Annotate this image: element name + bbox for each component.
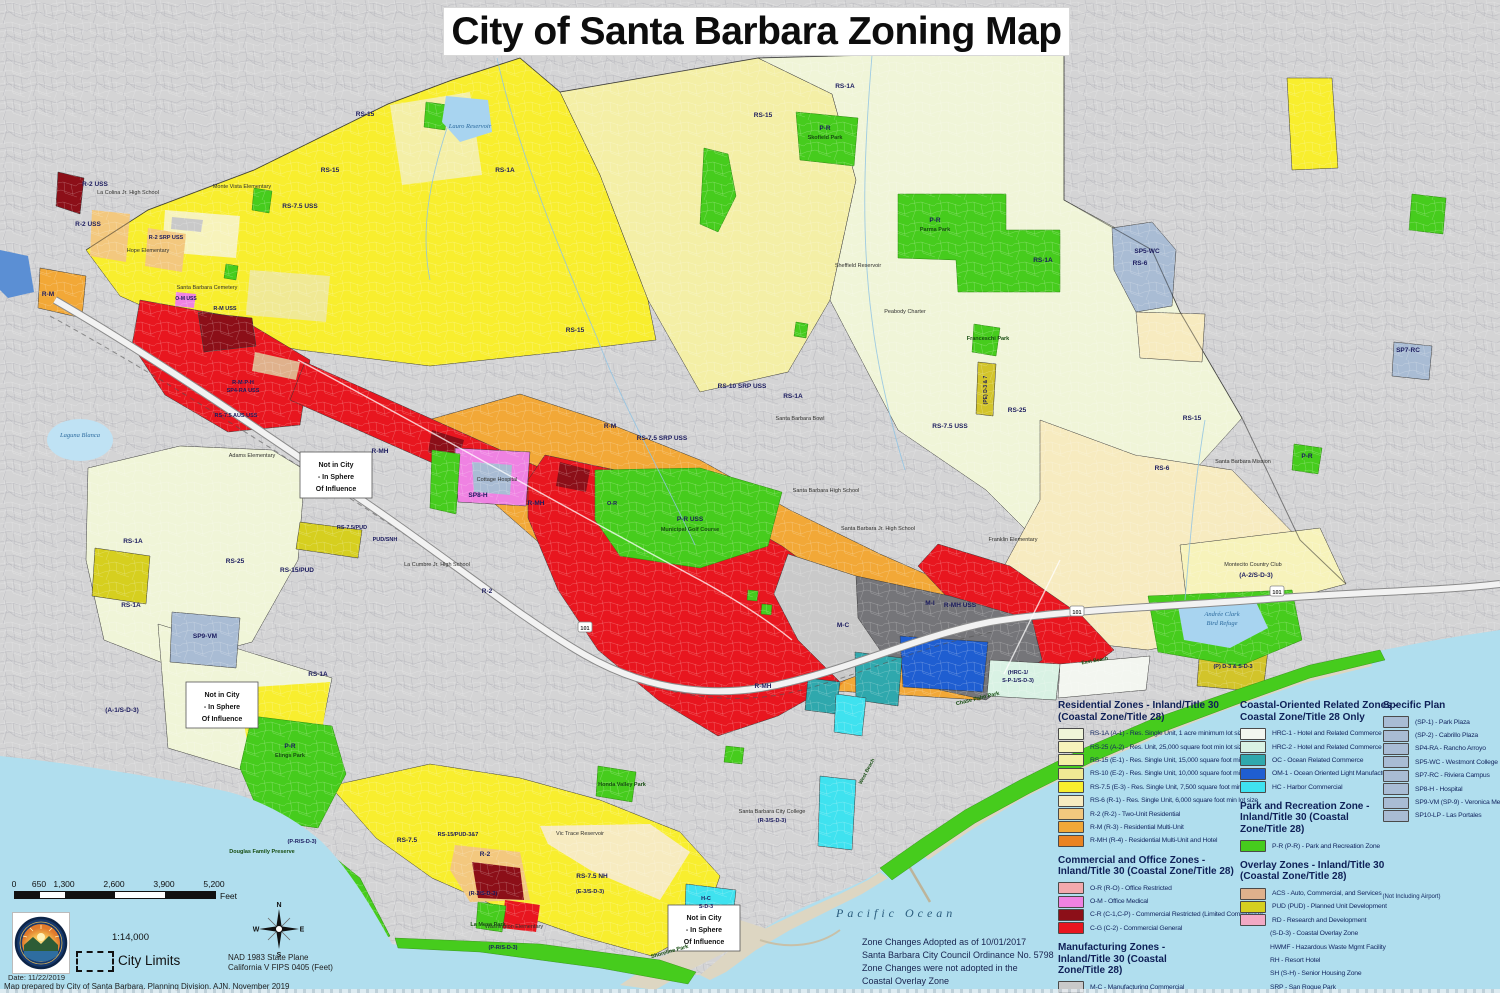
legend-item-label: RD - Research and Development [1272,917,1366,924]
scale-segment [115,892,165,898]
svg-text:- In Sphere: - In Sphere [204,704,240,711]
map-label: R-2 USS [82,181,108,188]
legend-item-label: ACS - Auto, Commercial, and Services [1272,890,1382,897]
map-label: (R-3/S-D-3) [758,818,787,824]
map-label: RS-6 [1133,260,1148,267]
map-label: SP9-VM [193,633,217,640]
legend-item: SP9-VM (SP-9) - Veronica Meadows [1383,796,1500,809]
map-date: Date: 11/22/2019 [8,973,65,982]
legend-swatch [1240,840,1266,852]
legend-item-label: (S-D-3) - Coastal Overlay Zone [1270,930,1358,937]
ocean-label: Pacific Ocean [836,906,956,921]
map-label: (R-2/S-D-3) [469,891,498,897]
map-label: (A-2/S-D-3) [1239,572,1273,579]
legend-item-label: O-M - Office Medical [1090,898,1148,905]
city-limits-label: City Limits [118,953,180,968]
svg-text:Of Influence: Of Influence [202,716,243,723]
legend-section: Manufacturing Zones - Inland/Title 30 (C… [1058,942,1265,993]
scale-segment [40,892,65,898]
compass-n: N [276,902,281,909]
map-label: M-I [925,600,935,607]
legend-swatch [1058,768,1084,780]
map-label: Elings Park [275,753,306,759]
legend-swatch [1058,909,1084,921]
map-label: Parma Park [920,227,951,233]
legend-swatch [1383,716,1409,728]
legend-item: RS-10 (E-2) - Res. Single Unit, 10,000 s… [1058,767,1265,780]
legend-section-title: Residential Zones - Inland/Title 30 (Coa… [1058,700,1236,723]
scale-tick: 0 [12,879,17,889]
legend-swatch [1383,743,1409,755]
map-label: RS-15 [566,327,585,334]
legend-item: SP5-WC - Westmont College [1383,756,1500,769]
legend-item-label: RS-25 (A-2) - Res. Unit, 25,000 square f… [1090,744,1245,751]
map-label: RS-15/PUD [280,567,314,574]
map-label: SP4-RA USS [227,388,260,394]
map-label: RS-7.5 SRP USS [637,435,688,442]
city-limits-swatch [76,951,114,972]
map-label: Skofield Park [808,135,844,141]
map-label: Franceschi Park [967,336,1010,342]
map-label: RS-7.5 AUS USS [215,413,258,419]
legend-item-label: R-MH (R-4) - Residential Multi-Unit and … [1090,837,1217,844]
legend-item: RS-25 (A-2) - Res. Unit, 25,000 square f… [1058,740,1265,753]
legend-swatch [1240,741,1266,753]
map-label: Franklin Elementary [989,537,1038,543]
map-label: Bird Refuge [1207,620,1238,627]
legend-swatch [1383,770,1409,782]
legend-item-label: RH - Resort Hotel [1270,957,1320,964]
map-label: (P) D-3 & S-D-3 [1213,664,1252,670]
legend-swatch [1058,896,1084,908]
map-label: R-M [42,291,54,298]
map-label: R-M USS [213,306,237,312]
highway-101-shield: 101 [1270,586,1284,596]
legend-swatch [1383,756,1409,768]
legend-section-title: Overlay Zones - Inland/Title 30 (Coastal… [1240,860,1392,883]
svg-text:101: 101 [1072,610,1081,616]
map-label: Cottage Hospital [477,477,518,483]
map-label: Andrée Clark [1203,611,1239,618]
city-seal [12,912,70,974]
map-label: H-C [701,896,711,902]
map-label: R-MH [372,448,389,455]
map-label: RS-7.5 USS [282,203,318,210]
legend-item-label: SP7-RC - Riviera Campus [1415,772,1490,779]
legend-item-label: RS-6 (R-1) - Res. Single Unit, 6,000 squ… [1090,797,1258,804]
legend-section-title: Commercial and Office Zones - Inland/Tit… [1058,855,1236,878]
legend-item-label: RS-1A (A-1) - Res. Single Unit, 1 acre m… [1090,730,1246,737]
legend-item: RH - Resort Hotel [1240,954,1441,967]
legend-section-title: Coastal-Oriented Related Zones - Coastal… [1240,700,1398,723]
legend-item-label: RS-7.5 (E-3) - Res. Single Unit, 7,500 s… [1090,784,1263,791]
map-label: PUD/SNH [373,537,398,543]
compass-e: E [300,927,305,934]
map-label: Hope Elementary [127,248,170,254]
legend-item-label: SP10-LP - Las Portales [1415,812,1482,819]
page-title: City of Santa Barbara Zoning Map [443,7,1070,56]
map-label: RS-1A [1033,257,1053,264]
legend-item-note: (Not Including Airport) [1383,894,1441,900]
legend-item-label: (SP-2) - Cabrillo Plaza [1415,732,1478,739]
map-label: RS-1A [835,83,855,90]
svg-text:Of Influence: Of Influence [316,486,357,493]
legend-item-label: (SP-1) - Park Plaza [1415,719,1470,726]
map-label: Santa Barbara City College [739,809,806,815]
map-label: RS-1A [495,167,515,174]
map-label: RS-7.5 USS [932,423,968,430]
legend-swatch [1058,781,1084,793]
map-label: RS-7.5 [397,837,418,844]
legend-swatch [1058,741,1084,753]
legend-swatch [1240,781,1266,793]
scale-ratio: 1:14,000 [112,932,149,943]
legend-item-label: PUD (PUD) - Planned Unit Development [1272,903,1387,910]
map-label: Santa Barbara Cemetery [177,285,238,291]
svg-text:- In Sphere: - In Sphere [318,474,354,481]
legend-section-title: Park and Recreation Zone - Inland/Title … [1240,801,1375,836]
map-label: Monte Vista Elementary [213,184,272,190]
legend-section: Commercial and Office Zones - Inland/Tit… [1058,855,1265,936]
legend-item-label: R-M (R-3) - Residential Multi-Unit [1090,824,1184,831]
legend-item-label: HC - Harbor Commercial [1272,784,1342,791]
legend-column-3: Specific Plan(SP-1) - Park Plaza(SP-2) -… [1383,700,1500,823]
legend-item: O-R (R-O) - Office Restricted [1058,882,1265,895]
map-label: Honda Valley Park [598,782,647,788]
legend-item: R-MH (R-4) - Residential Multi-Unit and … [1058,834,1265,847]
map-label: La Cumbre Jr. High School [404,562,470,568]
legend-item: SH (S-H) - Senior Housing Zone [1240,967,1441,980]
map-label: (P-R/S-D-3) [287,839,316,845]
map-label: Montecito Country Club [1224,562,1281,568]
scale-segment [165,892,215,898]
map-label: R-MH [755,683,772,690]
map-label: P-R [1301,453,1313,460]
svg-text:101: 101 [580,626,589,632]
not-in-city-box: Not in City- In SphereOf Influence [186,682,258,728]
legend-item-label: C-G (C-2) - Commercial General [1090,925,1182,932]
map-label: Adams Elementary [229,453,276,459]
legend-item-label: OC - Ocean Related Commerce [1272,757,1363,764]
legend-item-label: HRC-2 - Hotel and Related Commerce II [1272,744,1387,751]
legend-swatch [1240,754,1266,766]
legend-swatch [1240,914,1266,926]
legend-item: RS-6 (R-1) - Res. Single Unit, 6,000 squ… [1058,794,1265,807]
legend-swatch [1058,882,1084,894]
map-label: La Colina Jr. High School [97,190,159,196]
laguna-blanca-lake [47,419,113,461]
legend-item: RD - Research and Development [1240,914,1441,927]
map-label: RS-15 [754,112,773,119]
legend-swatch [1383,783,1409,795]
legend-item: (S-D-3) - Coastal Overlay Zone [1240,927,1441,940]
legend-item: C-G (C-2) - Commercial General [1058,922,1265,935]
svg-text:Not in City: Not in City [205,692,240,699]
legend-item: (SP-1) - Park Plaza [1383,716,1500,729]
map-label: RS-15/PUD-3&7 [438,832,479,838]
legend-item: RS-15 (E-1) - Res. Single Unit, 15,000 s… [1058,754,1265,767]
legend-item: P-R (P-R) - Park and Recreation Zone [1240,839,1441,852]
legend-item: R-2 (R-2) - Two-Unit Residential [1058,807,1265,820]
map-label: RS-6 [1155,465,1170,472]
scale-tick: 650 [32,879,46,889]
scale-tick: 2,600 [103,879,124,889]
not-in-city-box: Not in City- In SphereOf Influence [668,905,740,951]
map-label: R-2 [480,851,491,858]
map-label: M-C [837,622,850,629]
bottom-cut-strip [0,989,1500,993]
svg-text:- In Sphere: - In Sphere [686,927,722,934]
map-label: P-R [284,743,296,750]
map-label: Santa Barbara Jr. High School [841,526,915,532]
map-label: Lauro Reservoir [448,123,492,130]
map-label: Santa Barbara Bowl [776,416,825,422]
map-label: Douglas Family Preserve [229,849,294,855]
legend-swatch [1058,808,1084,820]
legend-item: R-M (R-3) - Residential Multi-Unit [1058,821,1265,834]
legend-item-label: HRC-1 - Hotel and Related Commerce I [1272,730,1385,737]
map-label: P-R USS [677,516,704,523]
map-label: RS-7.5/PUD [337,525,367,531]
map-label: RS-1A [308,671,328,678]
map-label: RS-15 [321,167,340,174]
legend-item-label: SP4-RA - Rancho Arroyo [1415,745,1486,752]
svg-text:101: 101 [1272,590,1281,596]
legend-section: Specific Plan(SP-1) - Park Plaza(SP-2) -… [1383,700,1500,823]
legend-item: SP7-RC - Riviera Campus [1383,769,1500,782]
legend-swatch [1058,728,1084,740]
map-label: P-R [819,125,831,132]
map-label: S-D-3 [699,904,713,910]
map-label: RS-7.5 NH [576,873,608,880]
map-label: RS-1A [121,602,141,609]
legend-item: ACS - Auto, Commercial, and Services(Not… [1240,887,1441,900]
map-label: La Mesa Park [470,922,506,928]
map-label: Sheffield Reservoir [835,263,882,269]
compass-w: W [253,927,260,934]
map-label: Santa Barbara High School [793,488,860,494]
zoning-map-screenshot: 101101101 Not in City- In SphereOf Influ… [0,0,1500,993]
legend-swatch [1240,901,1266,913]
legend-swatch [1058,795,1084,807]
map-label: (A-1/S-D-3) [105,707,139,714]
highway-101-shield: 101 [1070,606,1084,616]
scale-bar: 06501,3002,6003,9005,200 Feet [14,879,244,903]
map-label: Peabody Charter [884,309,926,315]
legend-item: SP8-H - Hospital [1383,782,1500,795]
svg-text:Not in City: Not in City [319,462,354,469]
map-label: R-2 SRP USS [149,235,184,241]
legend-item: O-M - Office Medical [1058,895,1265,908]
scale-segment [15,892,40,898]
legend-swatch [1058,821,1084,833]
scale-tick: 5,200 [203,879,224,889]
legend-item: C-R (C-1,C-P) - Commercial Restricted (L… [1058,908,1265,921]
legend-item-label: SP5-WC - Westmont College [1415,759,1498,766]
legend-item: RS-1A (A-1) - Res. Single Unit, 1 acre m… [1058,727,1265,740]
map-label: O-M USS [175,296,197,302]
map-label: Vic Trace Reservoir [556,831,604,837]
map-label: RS-1A [123,538,143,545]
legend-swatch [1240,888,1266,900]
legend-item-label: SP9-VM (SP-9) - Veronica Meadows [1415,799,1500,806]
legend-swatch [1058,835,1084,847]
scale-unit: Feet [220,891,237,901]
svg-text:Of Influence: Of Influence [684,939,725,946]
legend-item-label: RS-10 (E-2) - Res. Single Unit, 10,000 s… [1090,770,1265,777]
legend-swatch [1058,754,1084,766]
map-label: S-P-1/S-D-3) [1002,678,1034,684]
legend-swatch [1058,922,1084,934]
legend-item: (SP-2) - Cabrillo Plaza [1383,729,1500,742]
map-label: SP5-WC [1134,248,1160,255]
scale-segment [65,892,115,898]
not-in-city-box: Not in City- In SphereOf Influence [300,452,372,498]
legend-item-label: HWMF - Hazardous Waste Mgmt Facility [1270,944,1386,951]
map-label: RS-10 SRP USS [718,383,767,390]
legend-item-label: R-2 (R-2) - Two-Unit Residential [1090,811,1180,818]
legend-section-title: Specific Plan [1383,700,1500,712]
legend-column-1: Residential Zones - Inland/Title 30 (Coa… [1058,700,1265,993]
legend-swatch [1240,768,1266,780]
map-label: RS-15 [356,111,375,118]
datum-note: NAD 1983 State Plane California V FIPS 0… [228,953,333,973]
highway-101-shield: 101 [578,622,592,632]
map-label: R-2 USS [75,221,101,228]
map-label: (HRC-1/ [1008,670,1029,676]
map-label: RS-15 [1183,415,1202,422]
legend-item-label: OM-1 - Ocean Oriented Light Manufacturin… [1272,770,1396,777]
scale-tick: 3,900 [153,879,174,889]
map-label: R-M-P-H [232,380,254,386]
map-label: Santa Barbara Mission [1215,459,1271,465]
legend-swatch [1383,797,1409,809]
map-label: Municipal Golf Course [661,527,719,533]
map-label: RS-1A [783,393,803,400]
map-label: (PE) D-3 & 7 [983,375,989,404]
map-label: O-R [607,501,617,507]
legend-item: HWMF - Hazardous Waste Mgmt Facility [1240,940,1441,953]
legend-item-label: O-R (R-O) - Office Restricted [1090,885,1172,892]
legend-item-label: RS-15 (E-1) - Res. Single Unit, 15,000 s… [1090,757,1265,764]
map-label: RS-25 [1008,407,1027,414]
map-label: RS-25 [226,558,245,565]
map-label: R-2 [482,588,493,595]
legend-item-label: SH (S-H) - Senior Housing Zone [1270,970,1361,977]
map-label: P-R [929,217,941,224]
legend-item: SP4-RA - Rancho Arroyo [1383,742,1500,755]
legend-item-label: SP8-H - Hospital [1415,786,1462,793]
map-label: R-MH [528,500,545,507]
legend-item-label: C-R (C-1,C-P) - Commercial Restricted (L… [1090,911,1263,918]
legend-item: SP10-LP - Las Portales [1383,809,1500,822]
map-label: SP8-H [468,492,487,499]
legend-section: Residential Zones - Inland/Title 30 (Coa… [1058,700,1265,848]
legend-item: PUD (PUD) - Planned Unit Development [1240,900,1441,913]
legend-section: Overlay Zones - Inland/Title 30 (Coastal… [1240,860,1441,993]
legend-item: RS-7.5 (E-3) - Res. Single Unit, 7,500 s… [1058,781,1265,794]
map-label: SP7-RC [1396,347,1420,354]
map-label: (P-R/S-D-3) [488,945,517,951]
svg-text:Not in City: Not in City [687,915,722,922]
zone-changes-note: Zone Changes Adopted as of 10/01/2017 Sa… [862,936,1054,988]
legend-swatch [1383,730,1409,742]
legend-swatch [1383,810,1409,822]
legend-section-title: Manufacturing Zones - Inland/Title 30 (C… [1058,942,1186,977]
map-label: R-M [604,423,616,430]
map-label: Laguna Blanca [59,432,100,439]
map-label: R-MH USS [944,602,977,609]
legend-item-label: P-R (P-R) - Park and Recreation Zone [1272,843,1380,850]
map-label: (E-3/S-D-3) [576,889,604,895]
legend-swatch [1240,728,1266,740]
scale-tick: 1,300 [53,879,74,889]
